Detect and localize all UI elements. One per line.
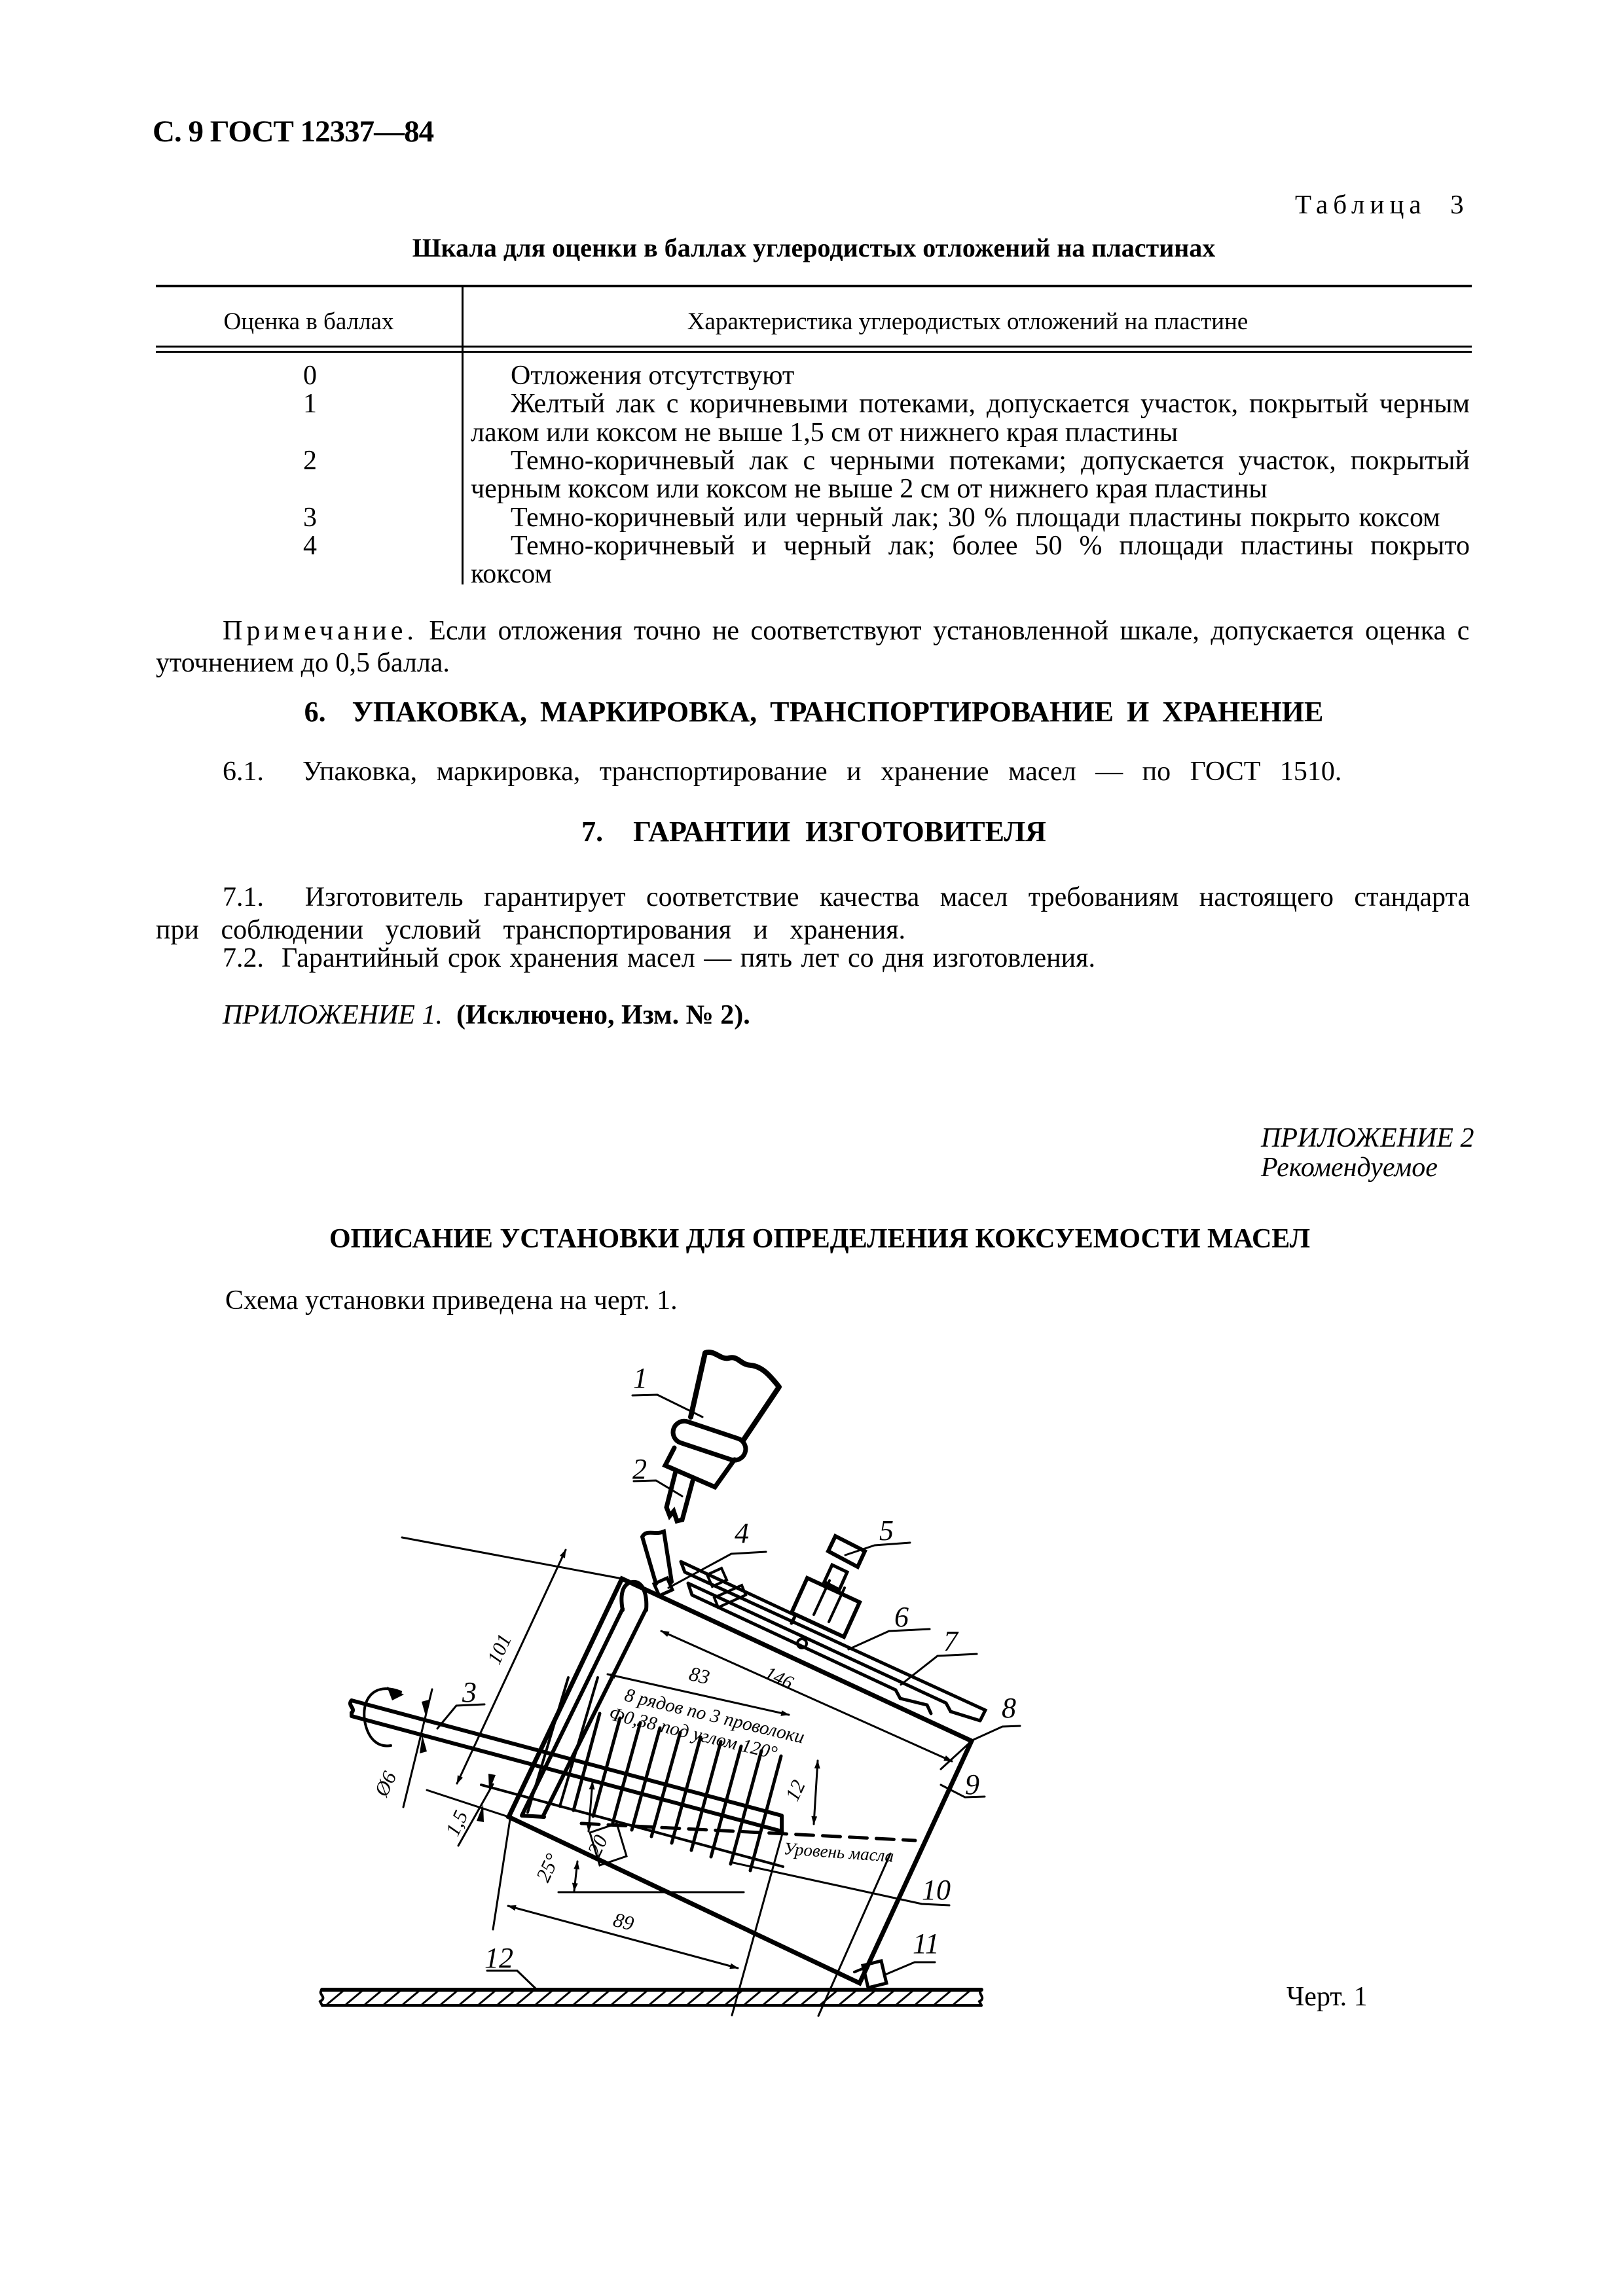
svg-text:7: 7 [943, 1625, 959, 1657]
svg-text:8: 8 [1002, 1692, 1016, 1724]
svg-text:11: 11 [913, 1928, 939, 1960]
svg-text:3: 3 [462, 1676, 477, 1708]
svg-text:6: 6 [894, 1601, 909, 1633]
svg-text:Ø6: Ø6 [369, 1768, 401, 1801]
svg-text:101: 101 [483, 1630, 516, 1668]
svg-text:83: 83 [687, 1662, 712, 1689]
svg-text:1: 1 [633, 1362, 647, 1394]
svg-text:4: 4 [735, 1517, 749, 1549]
svg-text:Уровень масла: Уровень масла [783, 1839, 894, 1866]
svg-text:5: 5 [879, 1515, 894, 1547]
svg-text:1,5: 1,5 [441, 1807, 472, 1840]
svg-text:10: 10 [922, 1874, 951, 1906]
svg-text:89: 89 [611, 1908, 636, 1935]
svg-text:9: 9 [965, 1768, 979, 1801]
svg-text:12: 12 [484, 1942, 513, 1974]
svg-text:2: 2 [632, 1453, 647, 1485]
svg-text:12: 12 [780, 1776, 810, 1804]
svg-text:25°: 25° [531, 1850, 564, 1885]
